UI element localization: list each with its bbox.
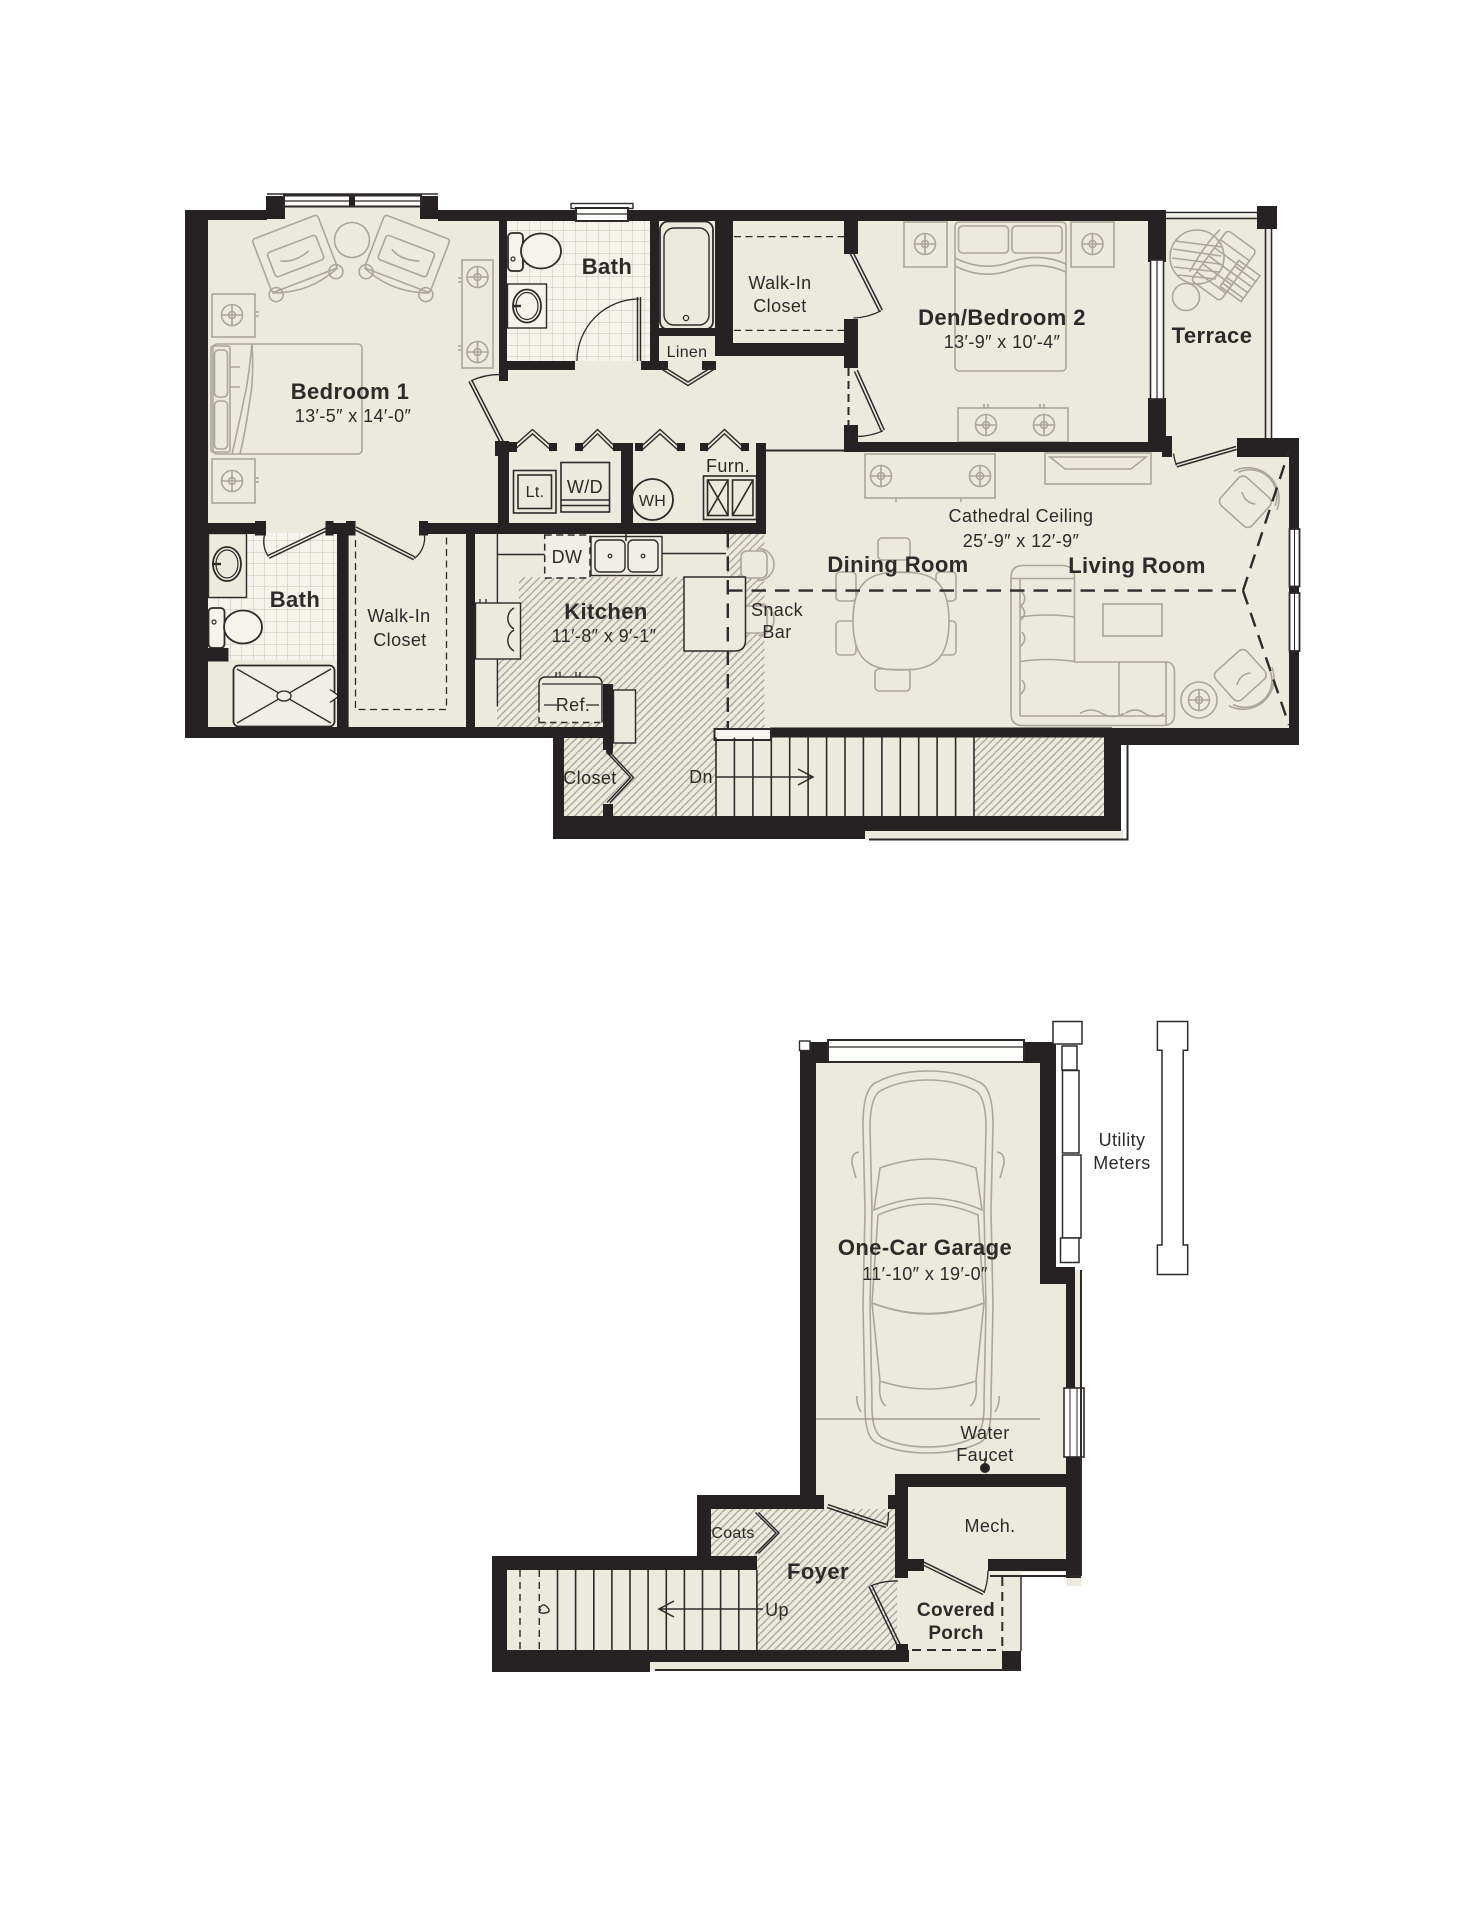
svg-text:Utility: Utility <box>1099 1130 1146 1150</box>
svg-text:WH: WH <box>639 493 666 510</box>
svg-text:Walk-In: Walk-In <box>367 606 430 626</box>
svg-text:Kitchen: Kitchen <box>564 599 647 624</box>
svg-text:Furn.: Furn. <box>706 456 750 476</box>
svg-text:Dining Room: Dining Room <box>827 552 968 577</box>
svg-text:13′-9″ x 10′-4″: 13′-9″ x 10′-4″ <box>944 332 1061 352</box>
svg-text:Closet: Closet <box>373 630 426 650</box>
svg-text:Terrace: Terrace <box>1172 323 1253 348</box>
svg-text:Bath: Bath <box>582 254 633 279</box>
svg-text:Lt.: Lt. <box>526 484 545 501</box>
svg-text:11′-8″ x 9′-1″: 11′-8″ x 9′-1″ <box>552 626 657 646</box>
svg-text:11′-10″ x 19′-0″: 11′-10″ x 19′-0″ <box>862 1264 988 1284</box>
svg-text:Up: Up <box>765 1600 789 1620</box>
svg-text:Porch: Porch <box>928 1623 983 1644</box>
svg-text:Coats: Coats <box>711 1525 754 1542</box>
svg-text:Living Room: Living Room <box>1068 553 1206 578</box>
svg-text:Covered: Covered <box>917 1600 995 1621</box>
svg-text:25′-9″ x 12′-9″: 25′-9″ x 12′-9″ <box>963 531 1080 551</box>
svg-text:Dn: Dn <box>689 767 713 787</box>
svg-text:Closet: Closet <box>753 296 806 316</box>
svg-text:Bar: Bar <box>762 622 791 642</box>
svg-text:DW: DW <box>552 547 583 567</box>
svg-text:Bedroom 1: Bedroom 1 <box>291 379 410 404</box>
svg-text:Bath: Bath <box>270 587 321 612</box>
svg-text:13′-5″ x 14′-0″: 13′-5″ x 14′-0″ <box>295 406 412 426</box>
svg-text:Foyer: Foyer <box>787 1559 849 1584</box>
svg-text:Den/Bedroom 2: Den/Bedroom 2 <box>918 305 1086 330</box>
svg-text:Walk-In: Walk-In <box>748 273 811 293</box>
svg-text:Snack: Snack <box>751 600 804 620</box>
svg-text:W/D: W/D <box>567 477 603 497</box>
svg-text:Ref.: Ref. <box>556 695 591 715</box>
svg-text:One-Car Garage: One-Car Garage <box>838 1235 1012 1260</box>
svg-text:Meters: Meters <box>1093 1153 1150 1173</box>
svg-text:Faucet: Faucet <box>956 1445 1013 1465</box>
svg-text:Linen: Linen <box>667 344 708 361</box>
svg-text:Cathedral Ceiling: Cathedral Ceiling <box>949 506 1094 526</box>
svg-text:Closet: Closet <box>563 768 616 788</box>
svg-text:Water: Water <box>960 1423 1009 1443</box>
svg-text:Mech.: Mech. <box>964 1516 1015 1536</box>
